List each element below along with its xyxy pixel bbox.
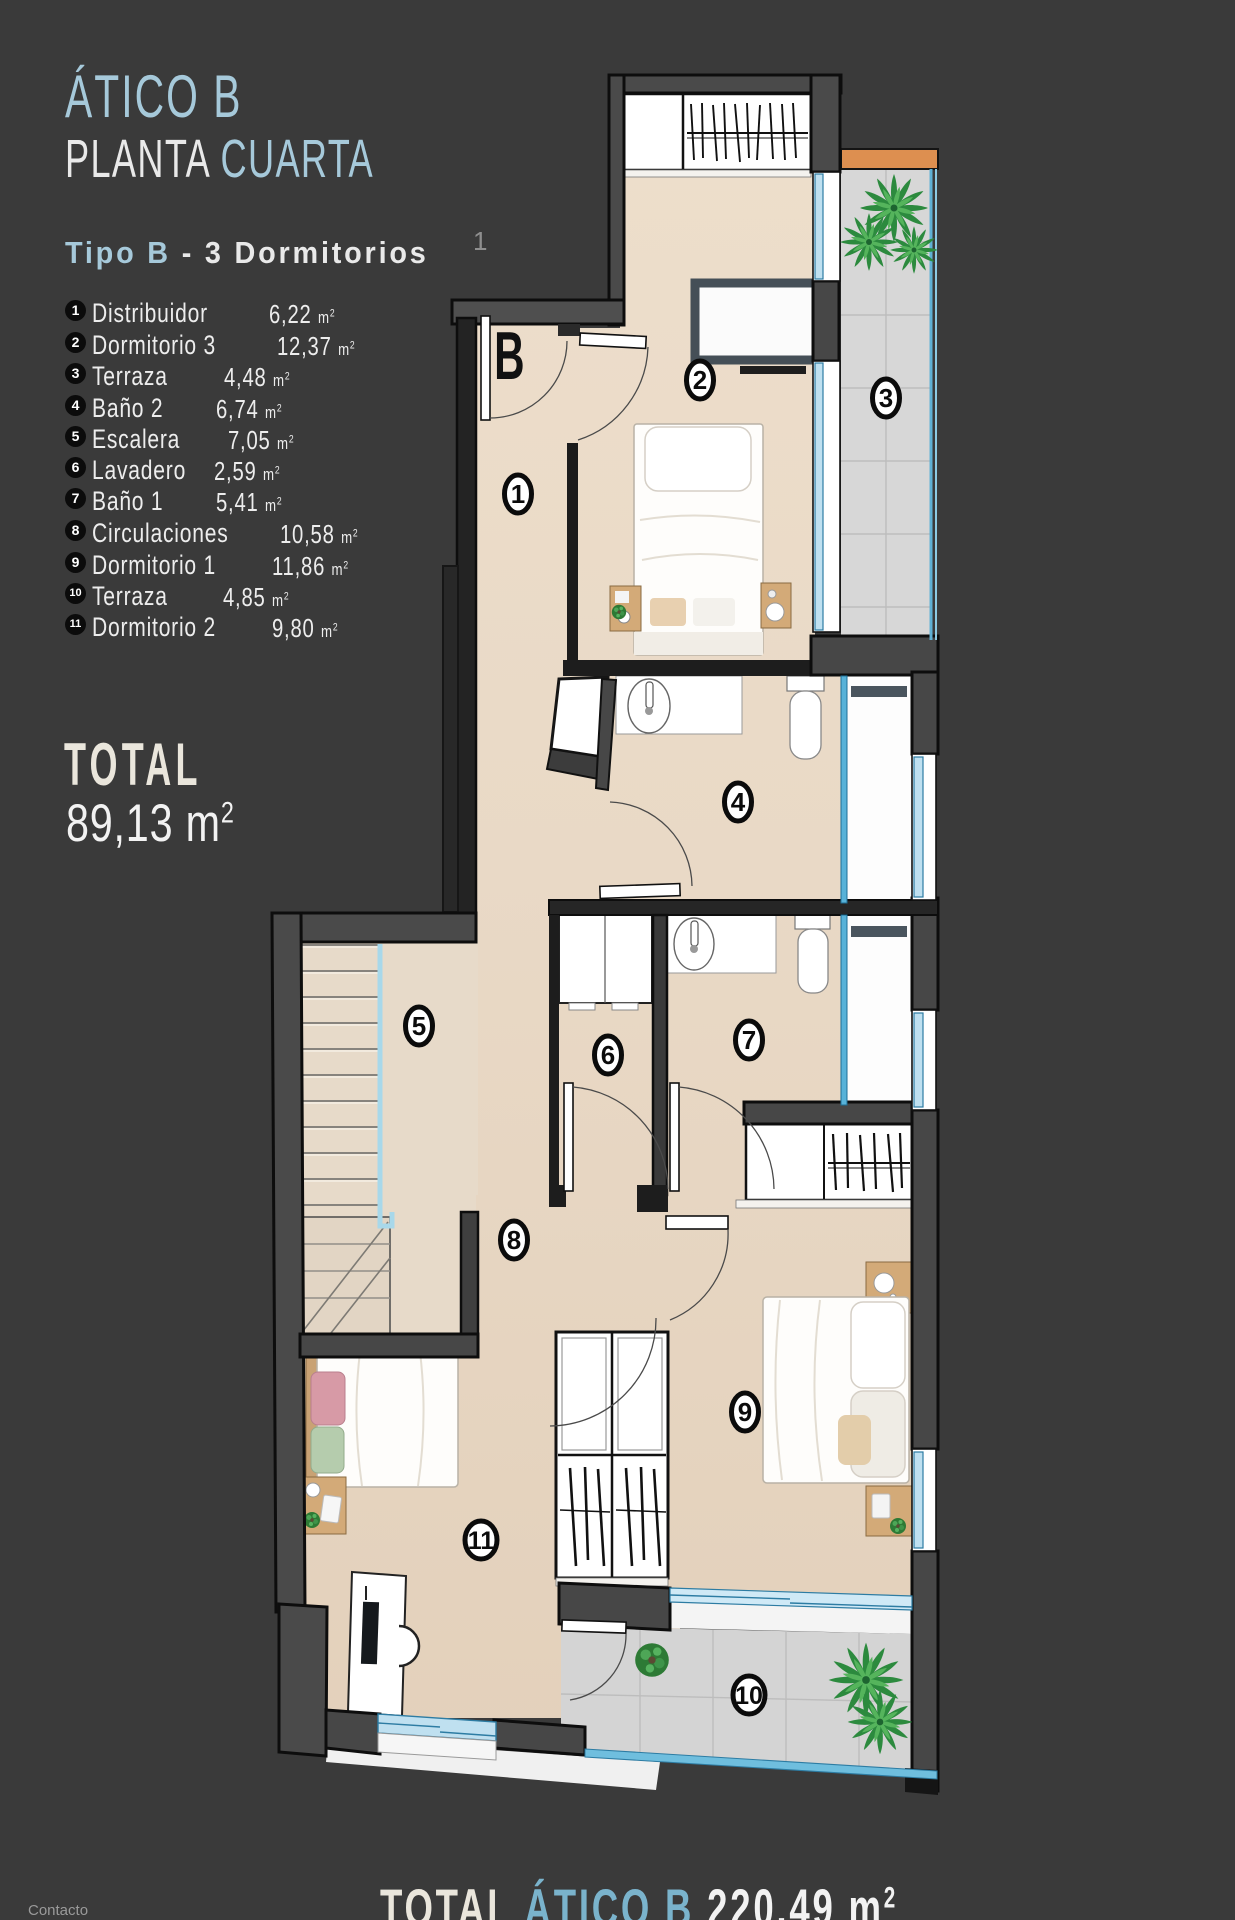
svg-text:10: 10 (735, 1682, 763, 1710)
svg-text:9: 9 (738, 1397, 752, 1427)
svg-text:8: 8 (507, 1225, 521, 1255)
svg-text:11: 11 (468, 1527, 495, 1555)
svg-text:6: 6 (601, 1040, 615, 1070)
svg-text:1: 1 (511, 479, 525, 509)
svg-text:2: 2 (693, 365, 707, 395)
svg-text:5: 5 (412, 1011, 426, 1041)
svg-text:3: 3 (879, 383, 893, 413)
svg-text:B: B (494, 318, 524, 394)
svg-text:7: 7 (742, 1025, 756, 1055)
svg-text:4: 4 (731, 787, 746, 817)
svg-text:1: 1 (473, 226, 487, 256)
